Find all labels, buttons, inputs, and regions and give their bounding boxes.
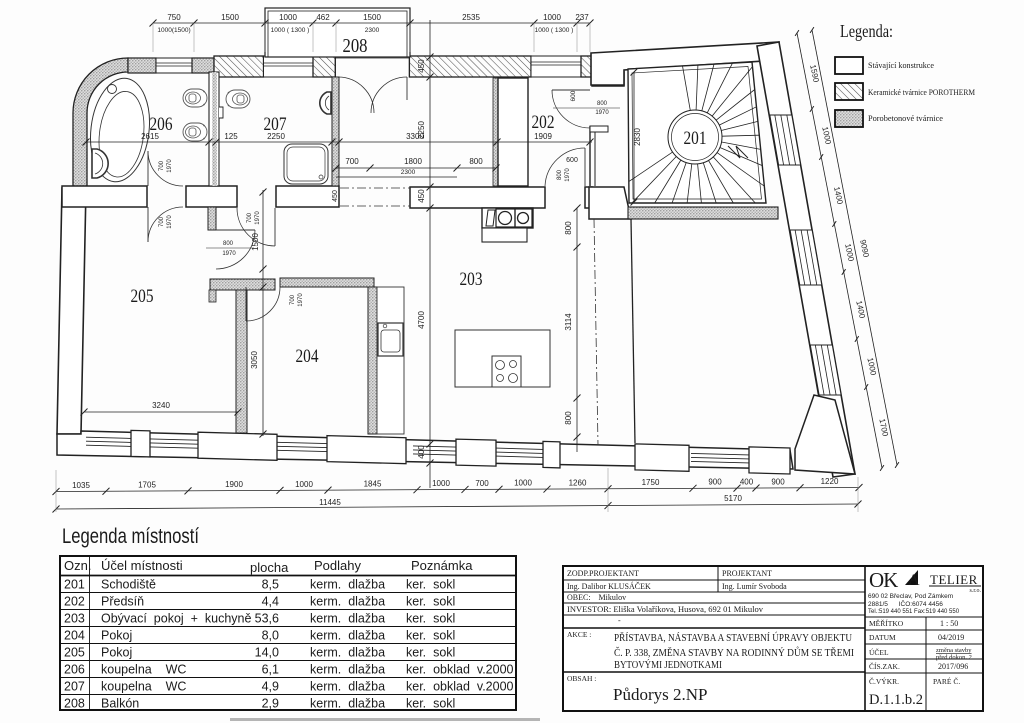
svg-text:4,9: 4,9 xyxy=(262,680,279,694)
svg-text:2300: 2300 xyxy=(365,27,380,34)
svg-text:14,0: 14,0 xyxy=(255,646,279,660)
svg-text:900: 900 xyxy=(771,477,785,486)
svg-text:Balkón: Balkón xyxy=(101,697,139,711)
svg-text:1800: 1800 xyxy=(404,157,422,166)
svg-text:Tel.:519 440 551 Fax:519 440 5: Tel.:519 440 551 Fax:519 440 550 xyxy=(868,609,960,615)
svg-text:ker. sokl: ker. sokl xyxy=(406,629,455,643)
svg-text:201: 201 xyxy=(64,578,85,592)
svg-text:změna stavby: změna stavby xyxy=(936,647,972,654)
svg-text:800: 800 xyxy=(564,221,573,235)
svg-text:1970: 1970 xyxy=(167,159,173,173)
svg-text:kerm. dlažba: kerm. dlažba xyxy=(310,578,385,592)
svg-text:kerm. dlažba: kerm. dlažba xyxy=(310,680,385,694)
svg-text:DATUM: DATUM xyxy=(869,633,896,642)
svg-text:1035: 1035 xyxy=(72,481,90,490)
svg-text:ker. sokl: ker. sokl xyxy=(406,612,455,626)
svg-text:Pokoj: Pokoj xyxy=(101,646,132,660)
svg-text:800: 800 xyxy=(469,157,483,166)
svg-text:462: 462 xyxy=(316,13,330,22)
svg-text:2830: 2830 xyxy=(633,128,642,146)
svg-text:PARÉ Č.: PARÉ Č. xyxy=(933,676,960,686)
svg-text:208: 208 xyxy=(343,35,368,57)
svg-text:Podlahy: Podlahy xyxy=(314,558,361,573)
svg-text:208: 208 xyxy=(64,697,85,711)
svg-text:206: 206 xyxy=(64,663,85,677)
svg-text:před dokon. 2: před dokon. 2 xyxy=(936,654,972,661)
svg-text:TELIER: TELIER xyxy=(930,572,978,587)
svg-text:1970: 1970 xyxy=(595,110,609,116)
svg-text:Pokoj: Pokoj xyxy=(101,629,132,643)
svg-text:2017/096: 2017/096 xyxy=(938,662,968,671)
svg-text:2615: 2615 xyxy=(141,132,159,141)
svg-text:3300: 3300 xyxy=(406,132,424,141)
svg-text:750: 750 xyxy=(167,13,181,22)
svg-text:53,6: 53,6 xyxy=(255,612,279,626)
svg-text:8,0: 8,0 xyxy=(262,629,279,643)
svg-text:1260: 1260 xyxy=(569,478,587,487)
svg-text:2881/5 IČO:6074 4456: 2881/5 IČO:6074 4456 xyxy=(868,599,943,608)
svg-text:Č. P. 338, ZMĚNA STAVBY NA ROD: Č. P. 338, ZMĚNA STAVBY NA RODINNÝ DŮM S… xyxy=(614,646,854,659)
svg-text:1000: 1000 xyxy=(432,479,450,488)
svg-text:1000: 1000 xyxy=(295,480,313,489)
svg-text:3114: 3114 xyxy=(564,313,573,331)
svg-text:ker. obklad v.2000: ker. obklad v.2000 xyxy=(406,680,514,694)
svg-text:kerm. dlažba: kerm. dlažba xyxy=(310,629,385,643)
svg-text:Předsíň: Předsíň xyxy=(101,595,144,609)
svg-text:OK: OK xyxy=(869,568,898,592)
svg-text:kerm. dlažba: kerm. dlažba xyxy=(310,595,385,609)
svg-text:Stávající konstrukce: Stávající konstrukce xyxy=(868,61,934,70)
svg-text:700: 700 xyxy=(247,212,253,223)
svg-text:Ing. Lumír Svoboda: Ing. Lumír Svoboda xyxy=(722,582,787,591)
svg-text:1750: 1750 xyxy=(642,478,660,487)
svg-text:D.1.1.b.2: D.1.1.b.2 xyxy=(869,692,923,708)
svg-text:4700: 4700 xyxy=(417,311,426,329)
svg-text:Schodiště: Schodiště xyxy=(101,578,156,592)
svg-text:700: 700 xyxy=(345,157,359,166)
svg-text:205: 205 xyxy=(131,286,154,307)
svg-text:700: 700 xyxy=(159,160,165,171)
svg-text:s.r.o.: s.r.o. xyxy=(969,588,981,594)
svg-text:1970: 1970 xyxy=(167,215,173,229)
svg-text:204: 204 xyxy=(296,346,319,367)
svg-text:plocha: plocha xyxy=(250,560,289,575)
svg-text:1 : 50: 1 : 50 xyxy=(940,619,958,628)
svg-text:kerm. dlažba: kerm. dlažba xyxy=(310,646,385,660)
svg-text:800: 800 xyxy=(597,101,608,107)
svg-text:ker. sokl: ker. sokl xyxy=(406,595,455,609)
svg-text:ČÍS.ZAK.: ČÍS.ZAK. xyxy=(869,661,900,671)
svg-text:450: 450 xyxy=(417,189,426,203)
svg-text:MĚŘÍTKO: MĚŘÍTKO xyxy=(869,618,904,628)
svg-text:11445: 11445 xyxy=(319,498,341,507)
svg-text:1909: 1909 xyxy=(534,132,552,141)
svg-text:1000 ( 1300 ): 1000 ( 1300 ) xyxy=(535,27,574,34)
svg-text:1970: 1970 xyxy=(255,211,261,225)
svg-text:BYTOVÝMI JEDNOTKAMI: BYTOVÝMI JEDNOTKAMI xyxy=(614,659,722,671)
svg-text:1220: 1220 xyxy=(821,477,839,486)
svg-text:8,5: 8,5 xyxy=(262,578,279,592)
svg-text:202: 202 xyxy=(532,112,555,133)
svg-text:205: 205 xyxy=(64,646,85,660)
svg-text:kerm. dlažba: kerm. dlažba xyxy=(310,663,385,677)
svg-text:AKCE :: AKCE : xyxy=(567,630,591,639)
svg-text:Č.VÝKR.: Č.VÝKR. xyxy=(869,676,899,686)
svg-text:A: A xyxy=(908,572,920,589)
svg-text:ZODP.PROJEKTANT: ZODP.PROJEKTANT xyxy=(567,569,639,578)
svg-text:203: 203 xyxy=(64,612,85,626)
svg-text:1500: 1500 xyxy=(363,13,381,22)
svg-text:ker. sokl: ker. sokl xyxy=(406,697,455,711)
svg-text:Obývací pokoj + kuchyně: Obývací pokoj + kuchyně xyxy=(101,612,251,626)
svg-text:1000: 1000 xyxy=(279,13,297,22)
svg-text:2300: 2300 xyxy=(401,169,416,176)
svg-text:5170: 5170 xyxy=(724,494,742,503)
svg-text:201: 201 xyxy=(684,128,707,149)
svg-text:202: 202 xyxy=(64,595,85,609)
svg-text:203: 203 xyxy=(460,269,483,290)
svg-text:1900: 1900 xyxy=(225,480,243,489)
svg-text:700: 700 xyxy=(159,216,165,227)
svg-text:1000: 1000 xyxy=(543,13,561,22)
svg-text:400: 400 xyxy=(740,478,754,487)
svg-text:690 02 Břeclav, Pod Zámkem: 690 02 Břeclav, Pod Zámkem xyxy=(868,593,953,600)
svg-text:Poznámka: Poznámka xyxy=(411,558,473,573)
svg-text:koupelna WC: koupelna WC xyxy=(101,680,186,694)
svg-text:3240: 3240 xyxy=(152,401,170,410)
svg-text:Ing. Dalibor KLUSÁČEK: Ing. Dalibor KLUSÁČEK xyxy=(567,581,651,591)
svg-text:ker. sokl: ker. sokl xyxy=(406,646,455,660)
svg-text:6,1: 6,1 xyxy=(262,663,279,677)
svg-text:-: - xyxy=(618,616,621,625)
svg-text:Keramické tvárnice POROTHERM: Keramické tvárnice POROTHERM xyxy=(868,88,975,97)
svg-text:450: 450 xyxy=(417,59,426,73)
svg-text:2250: 2250 xyxy=(267,132,285,141)
svg-text:1705: 1705 xyxy=(138,481,156,490)
svg-text:koupelna WC: koupelna WC xyxy=(101,663,186,677)
svg-text:1845: 1845 xyxy=(364,479,382,488)
svg-text:1000(1500): 1000(1500) xyxy=(157,27,190,34)
svg-text:3050: 3050 xyxy=(250,351,259,369)
svg-text:1000 ( 1300 ): 1000 ( 1300 ) xyxy=(271,27,310,34)
svg-text:2535: 2535 xyxy=(462,13,480,22)
svg-text:04/2019: 04/2019 xyxy=(938,633,964,642)
svg-text:Legenda místností: Legenda místností xyxy=(62,525,199,548)
svg-text:450: 450 xyxy=(332,190,339,202)
svg-text:204: 204 xyxy=(64,629,85,643)
svg-text:Porobetonové tvárnice: Porobetonové tvárnice xyxy=(868,114,943,123)
svg-text:kerm. dlažba: kerm. dlažba xyxy=(310,697,385,711)
svg-text:1970: 1970 xyxy=(298,293,304,307)
svg-text:600: 600 xyxy=(570,90,577,101)
svg-text:kerm. dlažba: kerm. dlažba xyxy=(310,612,385,626)
svg-text:600: 600 xyxy=(566,157,578,164)
svg-text:Účel místnosti: Účel místnosti xyxy=(101,558,183,573)
svg-text:800: 800 xyxy=(557,169,563,180)
svg-text:PROJEKTANT: PROJEKTANT xyxy=(722,569,772,578)
svg-text:ker. obklad v.2000: ker. obklad v.2000 xyxy=(406,663,514,677)
svg-text:1000: 1000 xyxy=(514,479,532,488)
svg-text:207: 207 xyxy=(64,680,85,694)
svg-text:OBSAH :: OBSAH : xyxy=(567,674,596,683)
svg-text:1970: 1970 xyxy=(222,251,236,257)
svg-text:700: 700 xyxy=(475,479,489,488)
svg-text:OBEC: Mikulov: OBEC: Mikulov xyxy=(567,593,626,602)
svg-text:PŘÍSTAVBA, NÁSTAVBA A STAVEBNÍ: PŘÍSTAVBA, NÁSTAVBA A STAVEBNÍ ÚPRAVY OB… xyxy=(614,632,852,644)
svg-text:237: 237 xyxy=(575,13,589,22)
svg-text:900: 900 xyxy=(708,478,722,487)
svg-text:ÚČEL: ÚČEL xyxy=(869,647,889,657)
svg-text:400: 400 xyxy=(417,445,426,459)
svg-text:125: 125 xyxy=(224,132,238,141)
svg-text:800: 800 xyxy=(223,241,234,247)
svg-text:700: 700 xyxy=(290,294,296,305)
svg-text:800: 800 xyxy=(564,411,573,425)
svg-text:1970: 1970 xyxy=(565,168,571,182)
svg-text:Půdorys 2.NP: Půdorys 2.NP xyxy=(613,685,707,704)
svg-text:2,9: 2,9 xyxy=(262,697,279,711)
svg-text:ker. sokl: ker. sokl xyxy=(406,578,455,592)
svg-text:4,4: 4,4 xyxy=(262,595,279,609)
svg-text:1500: 1500 xyxy=(221,13,239,22)
svg-text:Ozn.: Ozn. xyxy=(64,558,91,573)
svg-text:Legenda:: Legenda: xyxy=(840,21,893,41)
svg-text:INVESTOR: Eliška Volaříkova, H: INVESTOR: Eliška Volaříkova, Husova, 692… xyxy=(567,604,764,614)
